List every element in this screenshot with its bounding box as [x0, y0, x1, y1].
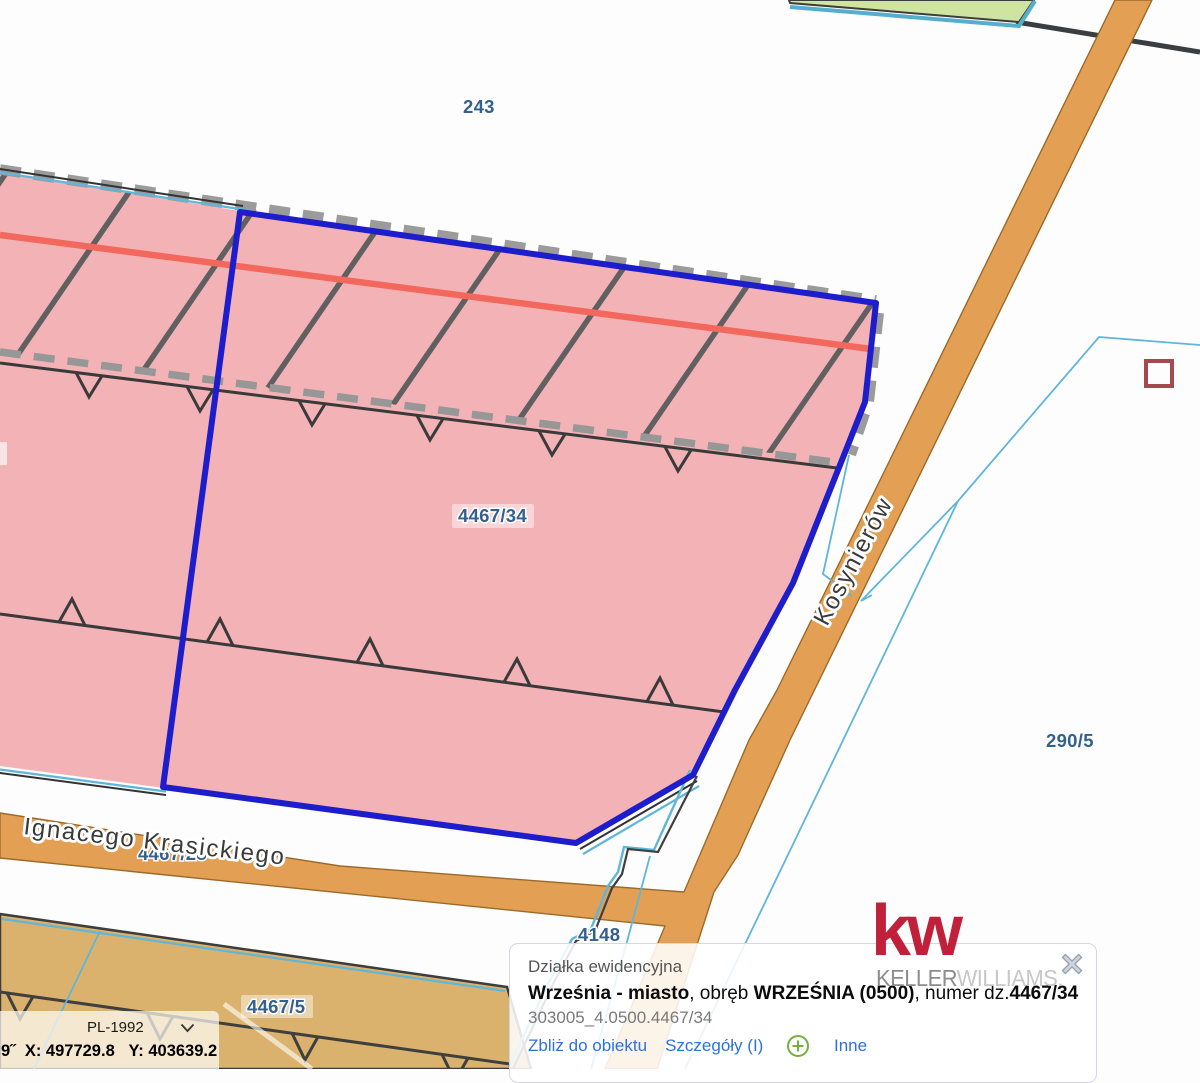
svg-text:4467/5: 4467/5: [247, 996, 305, 1017]
svg-text:4148: 4148: [578, 924, 620, 945]
svg-text:4467/34: 4467/34: [458, 505, 527, 526]
svg-text:290/5: 290/5: [1046, 730, 1094, 751]
svg-text:243: 243: [463, 96, 495, 117]
